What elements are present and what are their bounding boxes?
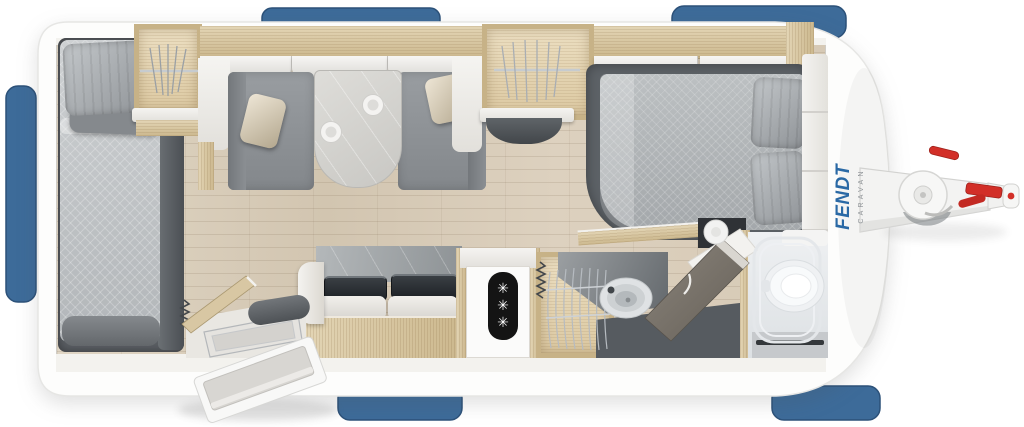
jockey-wheel	[903, 212, 951, 226]
rear-bed-blanket-roll	[62, 316, 160, 346]
nose-shading	[838, 68, 890, 348]
kitchen-lid	[388, 296, 458, 320]
bathroom-corner-unit	[698, 218, 746, 248]
caravan-floorplan-scene: ✳ ✳ ✳	[0, 0, 1024, 427]
wardrobe-left	[134, 24, 202, 116]
overhead-locker-dinette	[200, 26, 482, 58]
coupling-red-grip	[965, 183, 1002, 199]
overhead-locker-bed	[594, 26, 800, 58]
coupling-body	[988, 183, 1010, 209]
sill-rail	[756, 340, 824, 345]
jockey-wheel-mount	[899, 171, 947, 219]
dinette-side-wood-left	[198, 142, 214, 190]
brand-name: FENDT	[833, 163, 854, 230]
kitchen-window	[338, 386, 462, 420]
dinette-table	[314, 70, 402, 188]
snowflake-icon: ✳	[497, 282, 509, 296]
wardrobe-left-base	[136, 120, 202, 136]
snowflake-icon: ✳	[497, 299, 509, 313]
tow-hitch	[860, 145, 1019, 241]
dinette-side-panel-right	[452, 56, 482, 152]
wardrobe-mid	[482, 24, 594, 120]
coupling-handle	[957, 193, 986, 208]
fridge-freezer-badge: ✳ ✳ ✳	[488, 272, 518, 340]
brand-logo: FENDT CARAVAN	[833, 163, 865, 230]
snowflake-icon: ✳	[497, 316, 509, 330]
safety-button	[1008, 193, 1015, 200]
toilet-cistern	[782, 230, 828, 246]
fridge-top	[460, 248, 536, 268]
french-bed-pillow	[750, 77, 808, 150]
coupling-head	[1003, 184, 1019, 208]
headboard-shelf	[802, 54, 828, 238]
french-bed-pillow	[750, 150, 809, 226]
dinette-side-panel-left	[198, 58, 230, 150]
duvet-fold	[600, 74, 634, 230]
toilet-room-sill	[752, 332, 828, 358]
front-window	[772, 386, 880, 420]
brand-sub: CARAVAN	[858, 168, 865, 223]
rear-window	[6, 86, 36, 302]
kitchen-cabinet-front	[304, 318, 460, 358]
clamp-lever	[928, 145, 959, 160]
drawbar	[860, 168, 990, 232]
